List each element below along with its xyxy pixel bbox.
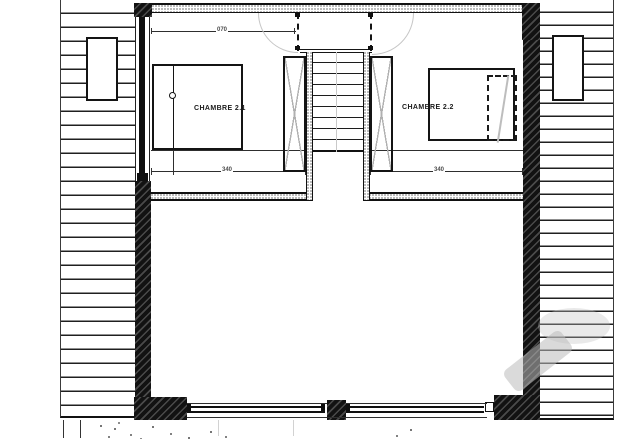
skylight-dashed-outline <box>487 75 517 141</box>
wall-corner-bottom-right <box>494 395 540 420</box>
reference-line <box>173 150 174 172</box>
bed-divider-line <box>173 64 174 150</box>
wall-corner-top-left <box>134 3 152 17</box>
skylight-diagonal <box>497 75 509 142</box>
window-jamb <box>187 404 191 413</box>
door-jamb <box>368 13 373 17</box>
stair-treads <box>313 52 363 152</box>
post-line <box>80 420 81 438</box>
floor-edge-wall-right <box>363 192 523 201</box>
bottom-window-right <box>348 411 484 413</box>
window-left-glazing <box>139 17 145 173</box>
stair-walk-line <box>336 52 337 152</box>
stairwell-wall-left <box>306 52 313 200</box>
door-jamb <box>295 13 300 17</box>
window-left-jamb <box>137 173 148 181</box>
floor-edge-wall-left <box>151 192 313 201</box>
floor-plan: 070 340 340 CHAMBRE 2.1 CHAMBRE 2.2 <box>0 0 640 439</box>
exterior-wall-top <box>134 3 540 13</box>
bottom-window-left <box>190 406 324 408</box>
door-swing-arc-left <box>257 13 298 53</box>
dimension-tick <box>151 168 152 175</box>
window-jamb <box>321 404 325 413</box>
chimney-right <box>552 35 584 101</box>
exterior-wall-right <box>523 40 540 396</box>
bedroom-2-label: CHAMBRE 2.2 <box>402 104 454 111</box>
faint-guide-line <box>218 420 219 436</box>
bedroom-1-label: CHAMBRE 2.1 <box>194 105 246 112</box>
bottom-window-left <box>190 411 324 413</box>
fixture-marker <box>169 92 176 99</box>
chimney-left <box>86 37 118 101</box>
wall-corner-top-right <box>522 3 540 40</box>
wall-corner-bottom-left <box>134 397 187 420</box>
bottom-wall-inner-line <box>187 417 487 418</box>
window-jamb <box>346 404 350 413</box>
door-jamb <box>368 46 373 50</box>
closet-left <box>283 56 306 172</box>
dimension-tick <box>151 28 152 34</box>
post-line <box>63 420 64 438</box>
dimension-label-room2: 340 <box>433 167 445 174</box>
exterior-wall-left <box>135 181 151 398</box>
door-swing-arc-right <box>372 13 414 55</box>
stair-landing <box>300 13 372 50</box>
dimension-label-top: 070 <box>216 27 228 34</box>
landing-edge-line <box>300 49 372 50</box>
ground-stipple-dots <box>100 425 102 427</box>
stairwell-opening <box>313 152 363 200</box>
faint-guide-line <box>293 420 294 436</box>
door-jamb <box>295 46 300 50</box>
dimension-label-room1: 340 <box>221 167 233 174</box>
bottom-window-right <box>348 406 484 408</box>
closet-right <box>370 56 393 172</box>
stairwell-wall-right <box>363 52 370 200</box>
